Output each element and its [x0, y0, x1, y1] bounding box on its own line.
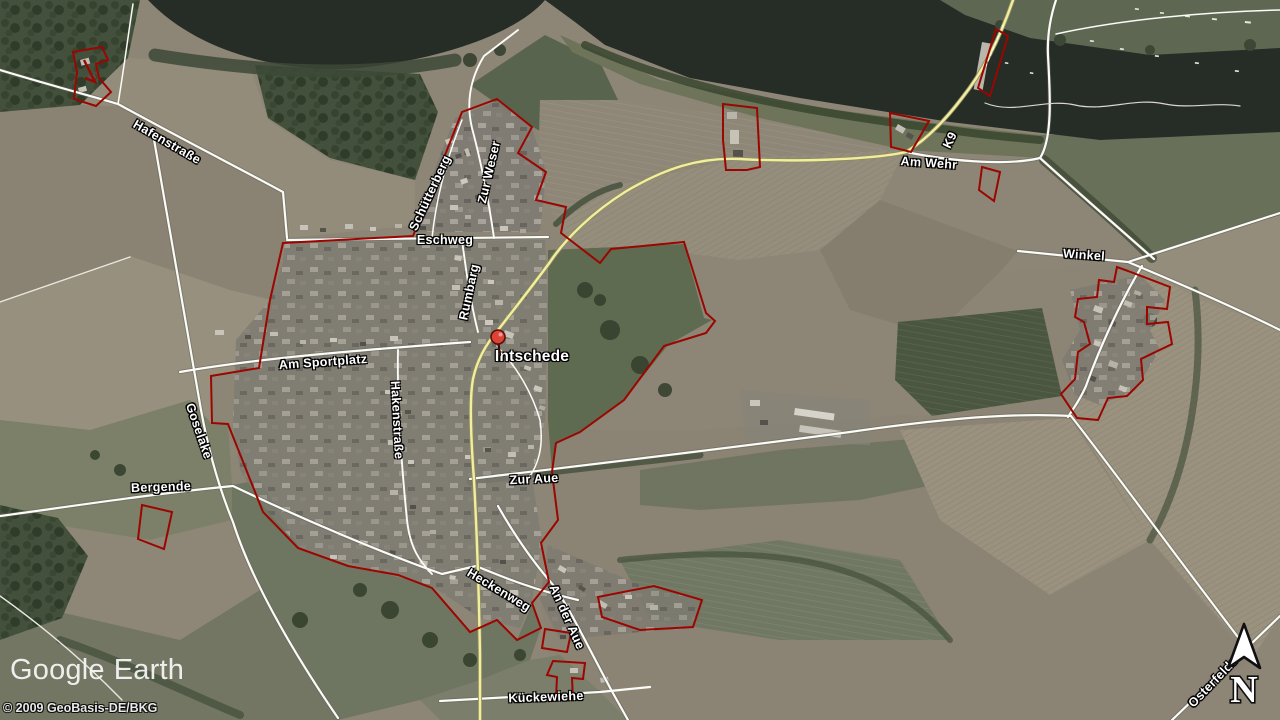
satellite-imagery [0, 0, 1280, 720]
logo-google: Google [10, 654, 105, 686]
pin-icon [488, 328, 508, 358]
logo-earth: Earth [114, 654, 184, 686]
north-compass[interactable]: N [1216, 622, 1272, 710]
compass-north-letter: N [1230, 669, 1257, 710]
north-arrow-icon [1228, 624, 1260, 668]
google-earth-logo: GoogleEarth [10, 654, 184, 687]
map-viewport[interactable]: Hafenstraße Schütterberg Zur Weser Eschw… [0, 0, 1280, 720]
copyright-attribution: © 2009 GeoBasis-DE/BKG [3, 701, 157, 715]
placemark-pin[interactable] [488, 328, 508, 358]
